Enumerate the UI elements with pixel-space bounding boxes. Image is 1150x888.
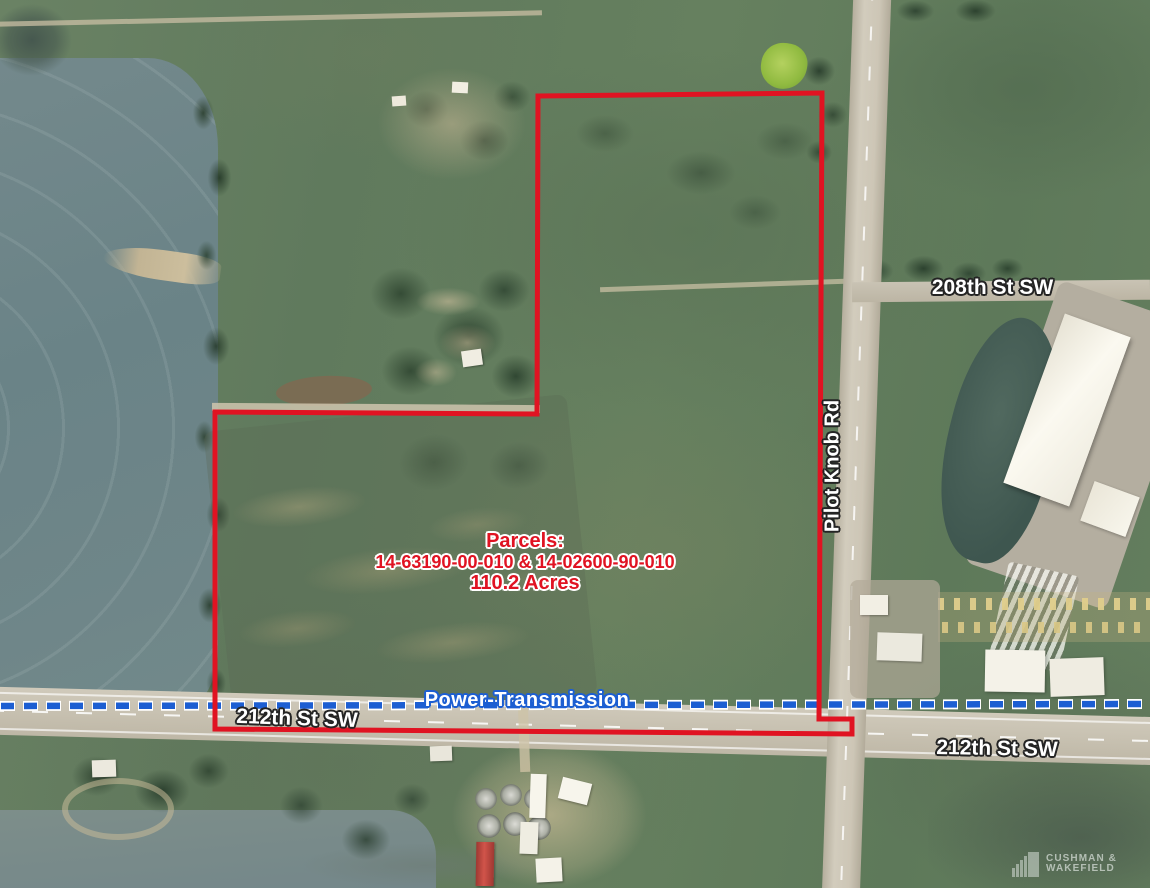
farm-shed [535, 857, 562, 882]
road-label-212th-right: 212th St SW [927, 737, 1067, 761]
cushman-wakefield-logo-text: CUSHMAN & WAKEFIELD [1046, 854, 1117, 874]
hay-bale-rows [938, 592, 1150, 642]
farm-shed [529, 774, 547, 819]
road-label-208th: 208th St SW [885, 277, 1100, 299]
parcel-ids: 14-63190-00-010 & 14-02600-90-010 [325, 552, 725, 573]
shed [860, 595, 888, 615]
tree-row-top-edge [878, 0, 1028, 28]
farm-building [452, 82, 469, 94]
parcel-info-label: Parcels: 14-63190-00-010 & 14-02600-90-0… [325, 531, 725, 594]
farmstead-dirt-trails [398, 272, 524, 390]
cushman-wakefield-watermark: CUSHMAN & WAKEFIELD [1012, 845, 1146, 883]
aerial-parcel-map: Parcels: 14-63190-00-010 & 14-02600-90-0… [0, 0, 1150, 888]
red-barn [476, 842, 495, 886]
cushman-wakefield-logo-icon [1012, 851, 1039, 877]
road-label-pilot-knob: Pilot Knob Rd [823, 400, 844, 532]
farm-building [392, 96, 407, 107]
farm-shed [519, 822, 538, 855]
tree-cluster-bottom-middle [255, 765, 440, 880]
shed [877, 632, 923, 662]
rural-house [92, 760, 117, 778]
industrial-building [1049, 657, 1104, 697]
parcel-acreage: 110.2 Acres [325, 573, 725, 594]
parcel-title: Parcels: [325, 531, 725, 552]
circular-driveway [62, 778, 174, 840]
farmstead-house [461, 349, 483, 368]
power-transmission-label: Power-Transmission [375, 690, 679, 711]
farm-house [430, 746, 453, 762]
industrial-building [985, 649, 1046, 692]
watermark-line2: WAKEFIELD [1046, 864, 1117, 874]
